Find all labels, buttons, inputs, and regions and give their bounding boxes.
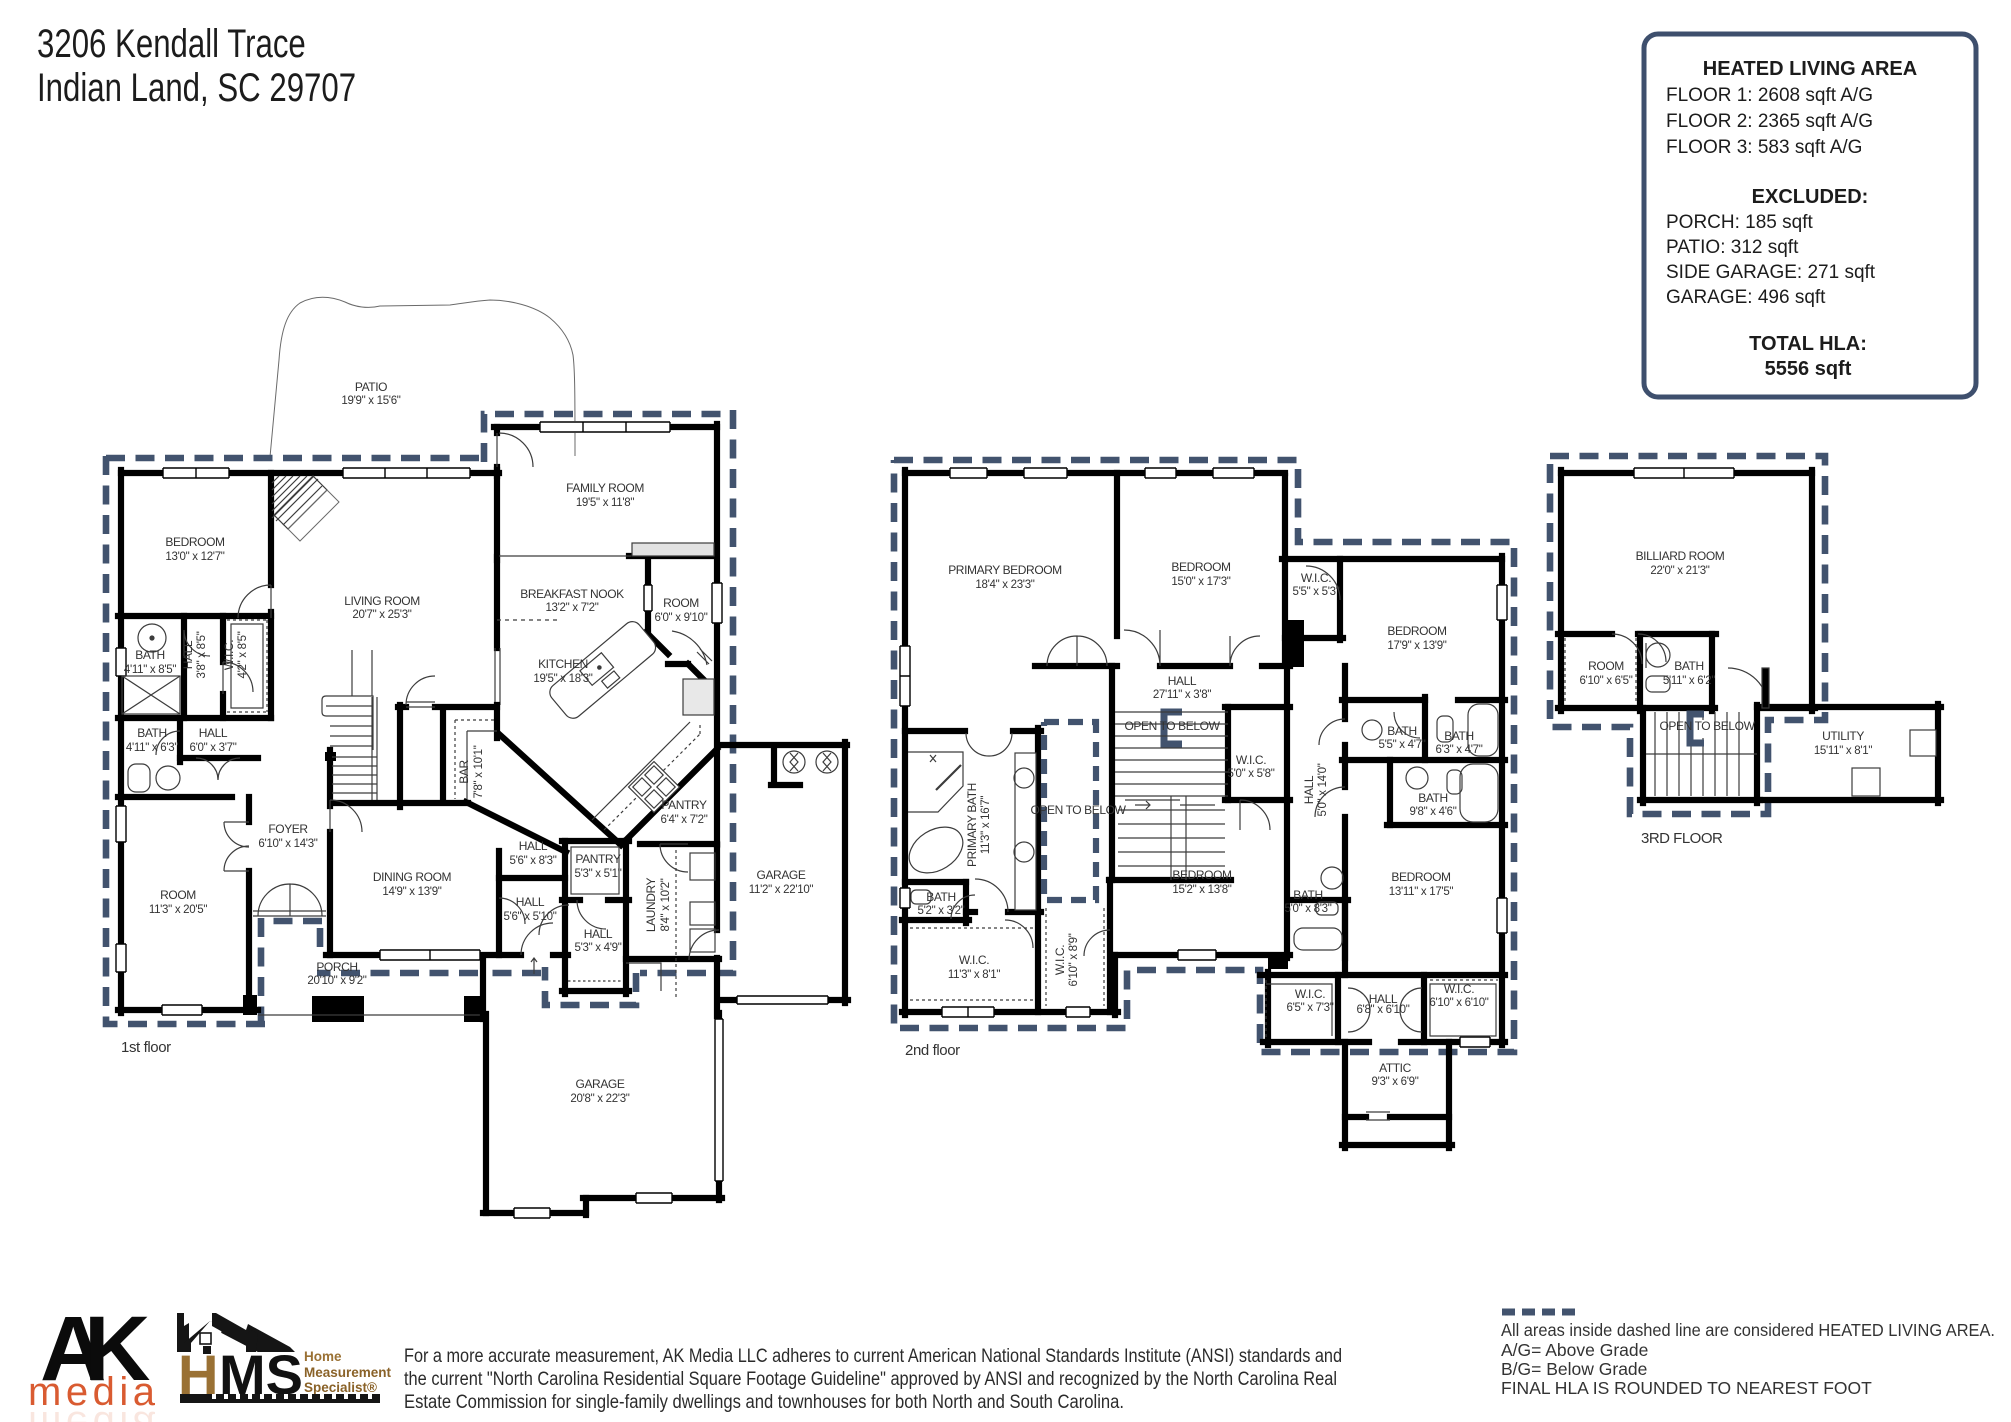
svg-text:HALL: HALL: [1168, 674, 1197, 688]
svg-text:14'9" x 13'9": 14'9" x 13'9": [382, 886, 441, 898]
svg-text:3RD FLOOR: 3RD FLOOR: [1641, 830, 1723, 847]
svg-text:17'9" x 13'9": 17'9" x 13'9": [1387, 640, 1446, 652]
svg-text:HALL: HALL: [199, 726, 228, 740]
svg-text:PATIO: PATIO: [355, 380, 387, 394]
svg-text:PORCH: PORCH: [316, 960, 357, 974]
svg-text:HALL: HALL: [181, 640, 195, 669]
svg-text:BEDROOM: BEDROOM: [1172, 868, 1232, 882]
svg-text:FOYER: FOYER: [268, 822, 308, 836]
svg-text:BAR: BAR: [457, 760, 471, 784]
svg-text:6'5" x 7'3": 6'5" x 7'3": [1287, 1002, 1334, 1014]
svg-text:5'5" x 4'7": 5'5" x 4'7": [1379, 739, 1426, 751]
svg-text:BEDROOM: BEDROOM: [1171, 560, 1231, 574]
svg-text:GARAGE: GARAGE: [576, 1077, 625, 1091]
svg-text:EXCLUDED:: EXCLUDED:: [1752, 186, 1869, 208]
svg-text:20'8" x 22'3": 20'8" x 22'3": [570, 1093, 629, 1105]
svg-text:BATH: BATH: [1444, 729, 1474, 743]
svg-text:11'2" x 22'10": 11'2" x 22'10": [749, 884, 814, 896]
svg-text:13'0" x 12'7": 13'0" x 12'7": [165, 551, 224, 563]
svg-text:Specialist®: Specialist®: [304, 1380, 377, 1395]
svg-text:HALL: HALL: [516, 895, 545, 909]
svg-text:BATH: BATH: [1674, 659, 1704, 673]
svg-text:SIDE GARAGE: 271 sqft: SIDE GARAGE: 271 sqft: [1666, 262, 1876, 283]
svg-text:HALL: HALL: [519, 839, 548, 853]
svg-text:6'8" x 6'10": 6'8" x 6'10": [1356, 1004, 1409, 1016]
svg-text:5556 sqft: 5556 sqft: [1765, 358, 1852, 380]
svg-text:ATTIC: ATTIC: [1379, 1061, 1412, 1075]
svg-text:5'6" x 5'10": 5'6" x 5'10": [503, 911, 556, 923]
svg-text:6'3" x 4'7": 6'3" x 4'7": [1436, 744, 1483, 756]
svg-text:FLOOR 2: 2365 sqft A/G: FLOOR 2: 2365 sqft A/G: [1666, 111, 1873, 132]
svg-text:13'11" x 17'5": 13'11" x 17'5": [1389, 886, 1454, 898]
svg-text:5'6" x 8'3": 5'6" x 8'3": [510, 855, 557, 867]
svg-text:W.I.C.: W.I.C.: [959, 953, 989, 967]
svg-text:11'3" x 20'5": 11'3" x 20'5": [149, 904, 208, 916]
svg-text:3206 Kendall Trace: 3206 Kendall Trace: [37, 21, 306, 66]
svg-text:PRIMARY BEDROOM: PRIMARY BEDROOM: [948, 563, 1062, 577]
svg-text:W.I.C.: W.I.C.: [1444, 982, 1474, 996]
svg-text:FAMILY ROOM: FAMILY ROOM: [566, 481, 644, 495]
svg-text:6'10" x 8'9": 6'10" x 8'9": [1068, 933, 1080, 986]
svg-text:4'2" x 8'5": 4'2" x 8'5": [237, 631, 249, 678]
svg-text:11'3" x 8'1": 11'3" x 8'1": [948, 969, 1000, 981]
svg-text:BATH: BATH: [135, 648, 165, 662]
svg-text:5'11" x 6'2": 5'11" x 6'2": [1663, 675, 1715, 687]
svg-text:5'2" x 3'2": 5'2" x 3'2": [918, 905, 965, 917]
svg-text:HEATED LIVING AREA: HEATED LIVING AREA: [1703, 58, 1917, 80]
svg-text:the current "North Carolina Re: the current "North Carolina Residential …: [404, 1369, 1337, 1390]
svg-text:KITCHEN: KITCHEN: [538, 657, 588, 671]
svg-text:ROOM: ROOM: [663, 596, 699, 610]
svg-text:Measurement: Measurement: [304, 1365, 392, 1380]
svg-text:BEDROOM: BEDROOM: [1387, 624, 1447, 638]
svg-text:9'8" x 4'6": 9'8" x 4'6": [1410, 806, 1457, 818]
svg-text:8'4" x 10'2": 8'4" x 10'2": [660, 878, 672, 931]
svg-text:media: media: [28, 1403, 159, 1422]
svg-text:2nd floor: 2nd floor: [905, 1042, 960, 1059]
svg-text:W.I.C.: W.I.C.: [222, 640, 236, 670]
svg-text:HALL: HALL: [1302, 775, 1316, 804]
svg-text:A/G= Above Grade: A/G= Above Grade: [1501, 1340, 1648, 1360]
svg-text:5'0" x 5'8": 5'0" x 5'8": [1228, 768, 1275, 780]
svg-text:19'9" x 15'6": 19'9" x 15'6": [341, 395, 400, 407]
svg-text:5'0" x 14'0": 5'0" x 14'0": [1317, 763, 1329, 816]
svg-text:W.I.C.: W.I.C.: [1053, 945, 1067, 975]
svg-text:15'2" x 13'8": 15'2" x 13'8": [1172, 884, 1231, 896]
svg-text:6'0" x 3'7": 6'0" x 3'7": [190, 742, 237, 754]
svg-text:For a more accurate measuremen: For a more accurate measurement, AK Medi…: [404, 1346, 1342, 1367]
svg-text:Estate Commission for single-f: Estate Commission for single-family dwel…: [404, 1392, 1124, 1413]
svg-text:FLOOR 3: 583 sqft A/G: FLOOR 3: 583 sqft A/G: [1666, 137, 1862, 158]
svg-text:FINAL HLA IS ROUNDED TO NEARES: FINAL HLA IS ROUNDED TO NEAREST FOOT: [1501, 1378, 1872, 1398]
svg-text:19'5" x 11'8": 19'5" x 11'8": [576, 497, 635, 509]
svg-text:9'3" x 6'9": 9'3" x 6'9": [1372, 1076, 1419, 1088]
svg-text:GARAGE: 496 sqft: GARAGE: 496 sqft: [1666, 287, 1826, 308]
svg-text:PATIO: 312 sqft: PATIO: 312 sqft: [1666, 237, 1799, 258]
svg-text:BATH: BATH: [1418, 791, 1448, 805]
svg-text:1st floor: 1st floor: [121, 1039, 171, 1056]
svg-text:19'5" x 18'3": 19'5" x 18'3": [533, 673, 592, 685]
svg-text:22'0" x 21'3": 22'0" x 21'3": [1650, 565, 1709, 577]
svg-text:27'11" x 3'8": 27'11" x 3'8": [1153, 689, 1212, 701]
svg-text:BATH: BATH: [137, 726, 167, 740]
svg-text:PANTRY: PANTRY: [661, 798, 707, 812]
svg-text:BATH: BATH: [926, 890, 956, 904]
svg-text:PANTRY: PANTRY: [575, 852, 621, 866]
svg-text:4'11" x 8'5": 4'11" x 8'5": [124, 664, 176, 676]
svg-text:11'3" x 16'7": 11'3" x 16'7": [980, 796, 992, 855]
svg-text:6'10" x 14'3": 6'10" x 14'3": [258, 838, 317, 850]
svg-text:W.I.C.: W.I.C.: [1301, 571, 1331, 585]
svg-text:5'5" x 5'3": 5'5" x 5'3": [1293, 586, 1340, 598]
svg-text:LAUNDRY: LAUNDRY: [644, 877, 658, 932]
svg-text:3'8" x 8'5": 3'8" x 8'5": [196, 631, 208, 678]
svg-text:Indian Land, SC 29707: Indian Land, SC 29707: [37, 65, 356, 110]
svg-text:5'0" x 8'3": 5'0" x 8'3": [1285, 903, 1332, 915]
svg-text:BEDROOM: BEDROOM: [1391, 870, 1451, 884]
svg-text:BATH: BATH: [1293, 888, 1323, 902]
svg-text:PRIMARY BATH: PRIMARY BATH: [965, 783, 979, 867]
svg-text:BEDROOM: BEDROOM: [165, 535, 225, 549]
svg-text:B/G= Below Grade: B/G= Below Grade: [1501, 1359, 1647, 1379]
svg-text:All areas inside dashed line a: All areas inside dashed line are conside…: [1501, 1320, 1995, 1340]
svg-text:ROOM: ROOM: [1588, 659, 1624, 673]
svg-text:OPEN TO BELOW: OPEN TO BELOW: [1030, 803, 1126, 817]
svg-text:6'4" x 7'2": 6'4" x 7'2": [661, 814, 708, 826]
svg-text:BATH: BATH: [1387, 724, 1417, 738]
svg-text:W.I.C.: W.I.C.: [1236, 753, 1266, 767]
svg-text:20'10" x 9'2": 20'10" x 9'2": [307, 975, 366, 987]
svg-text:15'0" x 17'3": 15'0" x 17'3": [1171, 576, 1230, 588]
svg-text:6'10" x 6'5": 6'10" x 6'5": [1579, 675, 1632, 687]
svg-text:OPEN TO BELOW: OPEN TO BELOW: [1124, 719, 1220, 733]
svg-text:20'7" x 25'3": 20'7" x 25'3": [352, 609, 411, 621]
svg-text:Home: Home: [304, 1349, 342, 1364]
svg-text:TOTAL HLA:: TOTAL HLA:: [1749, 333, 1867, 355]
svg-text:DINING ROOM: DINING ROOM: [373, 870, 452, 884]
svg-text:6'0" x 9'10": 6'0" x 9'10": [654, 612, 707, 624]
svg-text:5'3" x 4'9": 5'3" x 4'9": [575, 942, 622, 954]
svg-text:6'10" x 6'10": 6'10" x 6'10": [1429, 997, 1488, 1009]
svg-text:BREAKFAST NOOK: BREAKFAST NOOK: [520, 587, 624, 601]
svg-text:18'4" x 23'3": 18'4" x 23'3": [975, 579, 1034, 591]
svg-text:GARAGE: GARAGE: [757, 868, 806, 882]
svg-text:13'2" x 7'2": 13'2" x 7'2": [545, 602, 598, 614]
svg-text:ROOM: ROOM: [160, 888, 196, 902]
svg-text:W.I.C.: W.I.C.: [1295, 987, 1325, 1001]
svg-text:15'11" x 8'1": 15'11" x 8'1": [1814, 745, 1873, 757]
svg-text:5'3" x 5'1": 5'3" x 5'1": [575, 868, 622, 880]
svg-text:OPEN TO BELOW: OPEN TO BELOW: [1659, 719, 1755, 733]
svg-text:7'8" x 10'1": 7'8" x 10'1": [473, 745, 485, 798]
svg-text:FLOOR 1: 2608 sqft A/G: FLOOR 1: 2608 sqft A/G: [1666, 85, 1873, 106]
svg-text:LIVING ROOM: LIVING ROOM: [344, 594, 420, 608]
svg-text:HALL: HALL: [584, 927, 613, 941]
svg-text:UTILITY: UTILITY: [1822, 729, 1864, 743]
svg-text:4'11" x 6'3": 4'11" x 6'3": [126, 742, 178, 754]
svg-text:BILLIARD ROOM: BILLIARD ROOM: [1636, 549, 1725, 563]
svg-text:PORCH: 185 sqft: PORCH: 185 sqft: [1666, 212, 1813, 233]
